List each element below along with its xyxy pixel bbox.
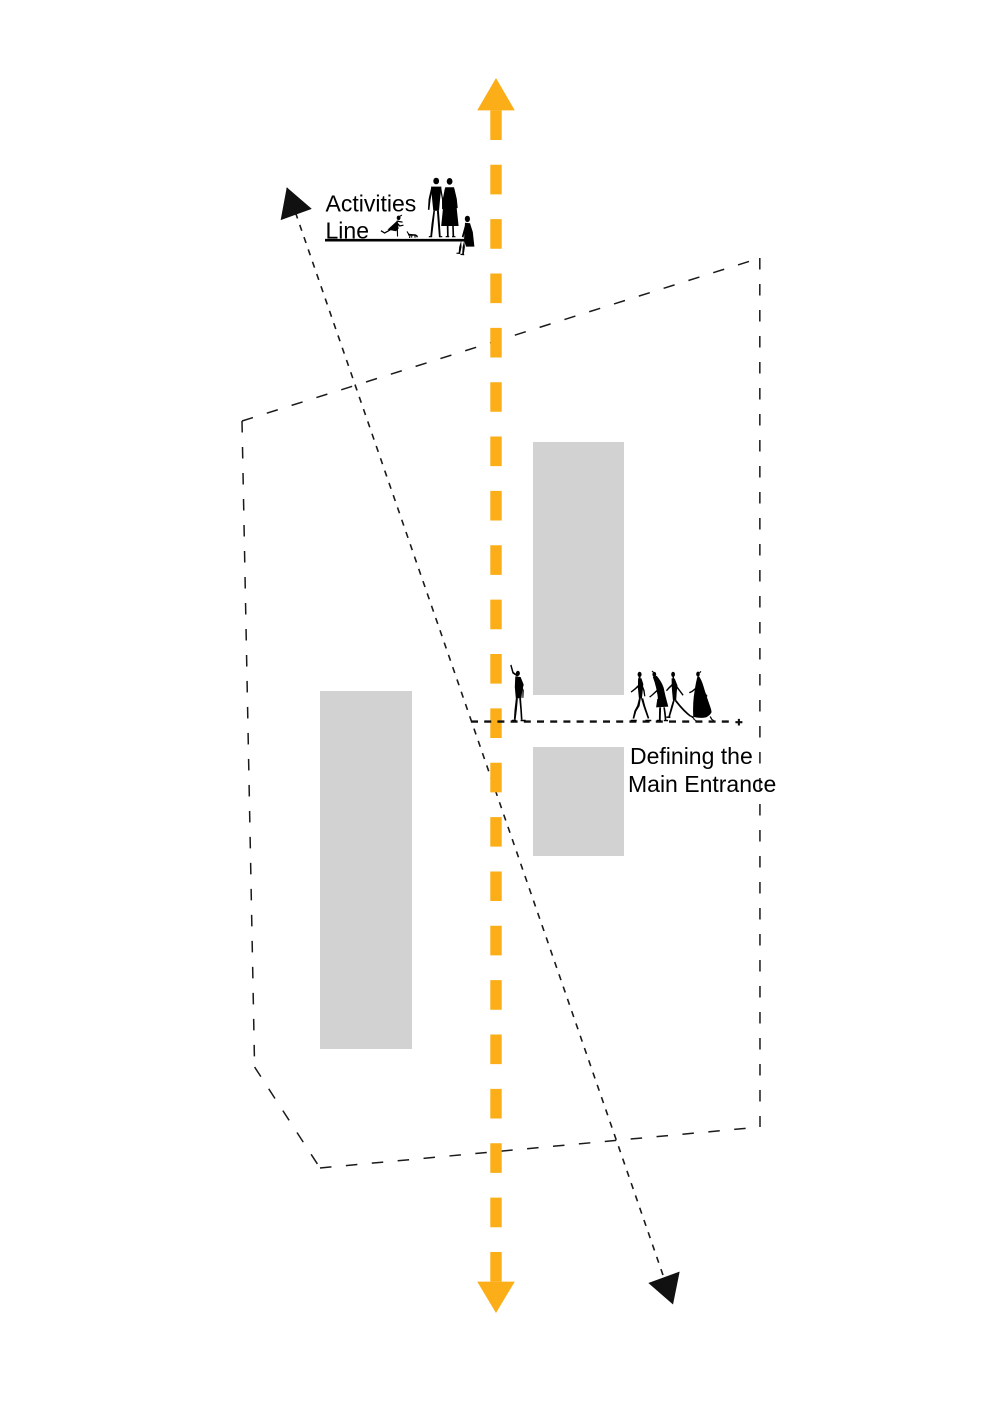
svg-text:Defining the: Defining the: [630, 743, 753, 769]
svg-text:Activities: Activities: [326, 191, 417, 217]
svg-text:Main Entrance: Main Entrance: [628, 771, 776, 797]
